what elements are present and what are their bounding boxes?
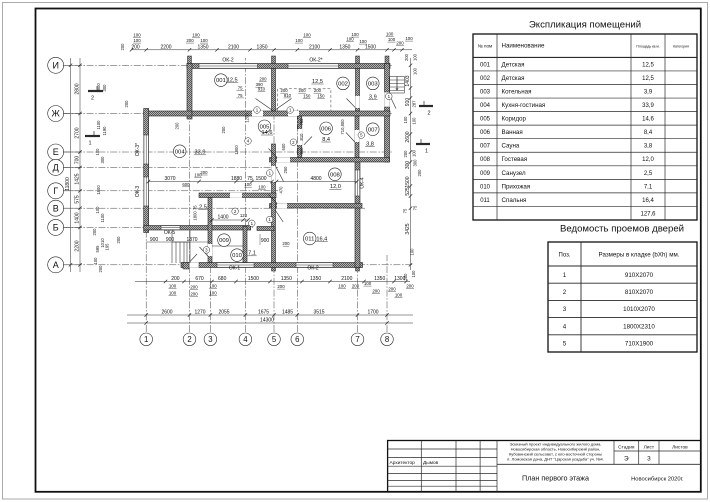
- svg-text:710Х1900: 710Х1900: [625, 341, 654, 348]
- svg-text:200: 200: [406, 284, 414, 289]
- svg-text:1800: 1800: [234, 145, 239, 155]
- svg-text:1: 1: [563, 272, 567, 279]
- svg-text:200: 200: [417, 169, 422, 177]
- svg-text:3: 3: [563, 306, 567, 313]
- svg-text:200: 200: [171, 276, 180, 282]
- svg-text:Прихожая: Прихожая: [502, 183, 531, 190]
- svg-text:005: 005: [480, 117, 491, 123]
- svg-text:Категория: Категория: [673, 44, 689, 48]
- svg-text:525: 525: [405, 187, 411, 196]
- svg-text:3425: 3425: [405, 223, 411, 234]
- svg-text:1190: 1190: [102, 126, 107, 136]
- svg-text:100: 100: [386, 32, 394, 37]
- svg-text:680: 680: [218, 276, 227, 282]
- svg-text:1485: 1485: [282, 310, 293, 316]
- svg-text:100: 100: [412, 67, 417, 75]
- svg-text:100: 100: [338, 284, 346, 289]
- svg-text:100: 100: [209, 291, 217, 296]
- svg-text:Санузел: Санузел: [502, 170, 526, 177]
- svg-text:Новосибирск 2020г.: Новосибирск 2020г.: [631, 477, 684, 483]
- svg-text:700: 700: [75, 156, 81, 165]
- svg-text:1100: 1100: [96, 120, 101, 130]
- svg-text:2100: 2100: [309, 44, 320, 50]
- svg-text:1350: 1350: [281, 276, 292, 282]
- svg-text:Спальня: Спальня: [502, 197, 527, 204]
- svg-text:200: 200: [190, 292, 198, 297]
- svg-text:Размеры в кладке (bХh) мм.: Размеры в кладке (bХh) мм.: [599, 252, 680, 259]
- svg-text:250: 250: [283, 166, 288, 174]
- svg-text:2,5: 2,5: [644, 171, 653, 177]
- svg-text:575: 575: [75, 195, 81, 204]
- svg-text:200: 200: [314, 88, 322, 93]
- svg-text:100: 100: [412, 53, 417, 61]
- svg-text:8: 8: [385, 335, 389, 344]
- svg-text:Листов: Листов: [672, 444, 688, 450]
- svg-text:Стадия: Стадия: [618, 444, 635, 450]
- svg-text:4800: 4800: [310, 176, 321, 182]
- svg-text:470: 470: [279, 186, 284, 194]
- svg-text:1: 1: [144, 335, 148, 344]
- svg-text:3: 3: [208, 335, 212, 344]
- svg-text:п. Ломовская дача, ДНТ "Царска: п. Ломовская дача, ДНТ "Царская усадьба"…: [507, 456, 604, 461]
- svg-text:120: 120: [240, 213, 248, 218]
- svg-text:Лист: Лист: [644, 444, 655, 450]
- svg-text:1500: 1500: [365, 44, 376, 50]
- svg-text:1880: 1880: [231, 176, 242, 182]
- svg-text:75: 75: [238, 93, 243, 98]
- svg-text:011: 011: [305, 237, 314, 243]
- svg-text:Наименование: Наименование: [502, 43, 545, 50]
- svg-text:1700: 1700: [367, 310, 378, 316]
- svg-text:100: 100: [192, 33, 200, 38]
- svg-text:100: 100: [359, 39, 367, 44]
- svg-text:600: 600: [281, 143, 286, 151]
- svg-text:008: 008: [480, 157, 491, 163]
- svg-text:1010Х2070: 1010Х2070: [623, 306, 655, 313]
- svg-text:006: 006: [480, 130, 491, 136]
- svg-text:План первого этажа: План первого этажа: [522, 474, 589, 483]
- svg-text:12,0: 12,0: [642, 157, 654, 163]
- svg-text:1500: 1500: [248, 276, 259, 282]
- svg-text:Кухня-гостиная: Кухня-гостиная: [502, 102, 546, 109]
- svg-text:8,4: 8,4: [644, 130, 653, 136]
- svg-text:5: 5: [272, 335, 277, 344]
- svg-text:Сауна: Сауна: [502, 143, 520, 150]
- svg-text:5: 5: [563, 341, 567, 348]
- svg-text:Гостевая: Гостевая: [502, 156, 528, 163]
- svg-text:1: 1: [88, 141, 91, 147]
- svg-text:003: 003: [368, 82, 379, 88]
- svg-text:595: 595: [95, 245, 100, 253]
- svg-text:ОК-3*: ОК-3*: [135, 143, 141, 156]
- svg-text:670: 670: [195, 276, 204, 282]
- svg-text:910: 910: [258, 87, 266, 92]
- svg-text:1350: 1350: [339, 44, 350, 50]
- svg-text:1675: 1675: [258, 310, 269, 316]
- svg-text:Детская: Детская: [502, 75, 525, 82]
- svg-text:100: 100: [93, 257, 98, 265]
- svg-text:100: 100: [403, 116, 408, 124]
- svg-text:2100: 2100: [341, 276, 352, 282]
- svg-text:7: 7: [355, 335, 359, 344]
- svg-text:3070: 3070: [164, 176, 175, 182]
- svg-text:300: 300: [413, 159, 418, 167]
- svg-text:009: 009: [480, 171, 491, 177]
- svg-text:100: 100: [133, 38, 141, 43]
- svg-text:2800: 2800: [75, 83, 81, 94]
- svg-text:14300: 14300: [260, 318, 274, 324]
- svg-text:007: 007: [368, 127, 378, 133]
- svg-text:200: 200: [98, 265, 103, 273]
- svg-text:100: 100: [295, 38, 303, 43]
- svg-text:200: 200: [200, 170, 208, 175]
- svg-text:Г: Г: [53, 186, 58, 196]
- svg-text:14,6: 14,6: [642, 117, 654, 123]
- svg-text:150: 150: [303, 94, 311, 99]
- svg-text:2055: 2055: [218, 310, 229, 316]
- svg-text:Котельная: Котельная: [502, 88, 532, 95]
- svg-text:100: 100: [244, 182, 252, 187]
- svg-text:1400: 1400: [217, 214, 228, 220]
- svg-text:2200: 2200: [160, 44, 171, 50]
- svg-text:А: А: [53, 260, 59, 270]
- svg-text:1800: 1800: [96, 185, 101, 195]
- svg-text:2: 2: [187, 335, 191, 344]
- svg-text:Поз.: Поз.: [559, 253, 571, 259]
- svg-text:200: 200: [116, 236, 121, 244]
- svg-text:И: И: [52, 61, 58, 71]
- svg-text:200: 200: [186, 38, 194, 43]
- svg-text:3515: 3515: [313, 310, 324, 316]
- svg-text:004: 004: [175, 149, 186, 155]
- svg-text:1100: 1100: [100, 213, 105, 223]
- svg-text:010: 010: [480, 184, 491, 190]
- svg-text:100: 100: [412, 149, 417, 157]
- svg-text:Экспликация помещений: Экспликация помещений: [529, 20, 641, 31]
- svg-text:2600: 2600: [405, 131, 411, 142]
- svg-text:200: 200: [388, 287, 396, 292]
- svg-text:2200: 2200: [75, 240, 81, 251]
- svg-text:ОК-1: ОК-1: [229, 266, 240, 272]
- svg-text:1500: 1500: [255, 176, 266, 182]
- svg-text:100: 100: [200, 38, 208, 43]
- svg-text:2100: 2100: [228, 44, 239, 50]
- svg-text:100: 100: [258, 185, 266, 190]
- svg-text:16,4: 16,4: [642, 198, 654, 204]
- svg-text:009: 009: [219, 238, 229, 244]
- svg-text:100: 100: [364, 281, 372, 286]
- svg-text:100: 100: [411, 270, 416, 278]
- svg-text:011: 011: [480, 198, 490, 204]
- svg-text:900: 900: [261, 238, 270, 244]
- svg-text:1425: 1425: [75, 173, 81, 184]
- svg-text:Э: Э: [624, 455, 629, 462]
- svg-text:200: 200: [403, 273, 408, 281]
- svg-text:200: 200: [259, 76, 267, 81]
- svg-text:1350: 1350: [256, 44, 267, 50]
- svg-text:75: 75: [238, 85, 243, 90]
- svg-text:200: 200: [282, 241, 290, 246]
- svg-text:200: 200: [221, 126, 226, 134]
- svg-text:007: 007: [480, 144, 491, 150]
- svg-text:2600: 2600: [161, 310, 172, 316]
- svg-text:200: 200: [190, 285, 198, 290]
- svg-text:Ведомость проемов дверей: Ведомость проемов дверей: [560, 224, 684, 235]
- svg-text:150: 150: [317, 94, 325, 99]
- svg-text:ОК-4: ОК-4: [359, 177, 365, 188]
- svg-text:127,6: 127,6: [640, 211, 656, 217]
- svg-text:100: 100: [95, 148, 100, 156]
- svg-text:2: 2: [427, 111, 430, 117]
- svg-text:75: 75: [403, 208, 408, 213]
- svg-text:810: 810: [299, 133, 304, 141]
- svg-text:1200: 1200: [245, 113, 250, 123]
- svg-text:195: 195: [105, 243, 110, 251]
- svg-text:100: 100: [169, 291, 177, 296]
- svg-text:33,9: 33,9: [642, 103, 654, 109]
- svg-text:1403: 1403: [405, 75, 411, 86]
- svg-text:200: 200: [404, 53, 409, 61]
- svg-text:3,9: 3,9: [644, 89, 653, 95]
- svg-text:100: 100: [351, 32, 359, 37]
- svg-text:Детская: Детская: [502, 61, 525, 68]
- svg-text:1350: 1350: [310, 276, 321, 282]
- svg-text:300: 300: [100, 156, 105, 164]
- svg-text:300: 300: [405, 161, 411, 170]
- svg-text:001: 001: [216, 78, 226, 84]
- svg-text:910Х2070: 910Х2070: [625, 272, 654, 279]
- svg-text:Дымов: Дымов: [423, 460, 439, 466]
- svg-text:1500: 1500: [405, 176, 411, 187]
- svg-text:3,8: 3,8: [644, 144, 653, 150]
- svg-text:100: 100: [410, 248, 415, 256]
- svg-text:Ванная: Ванная: [502, 129, 523, 136]
- svg-text:1350: 1350: [374, 276, 385, 282]
- svg-text:1270: 1270: [194, 310, 205, 316]
- svg-text:006: 006: [321, 126, 332, 132]
- svg-text:2: 2: [91, 96, 94, 102]
- svg-text:200: 200: [124, 100, 129, 108]
- svg-text:№ пом: № пом: [478, 44, 492, 49]
- svg-text:003: 003: [480, 89, 491, 95]
- svg-text:200: 200: [352, 284, 360, 289]
- svg-text:100: 100: [133, 33, 141, 38]
- svg-text:710,800: 710,800: [340, 119, 345, 135]
- svg-text:12,5: 12,5: [642, 76, 654, 82]
- svg-text:В: В: [53, 203, 59, 213]
- svg-text:100: 100: [95, 206, 100, 214]
- svg-text:Площадь кв.м.: Площадь кв.м.: [636, 44, 659, 48]
- svg-text:002: 002: [338, 82, 348, 88]
- svg-text:200: 200: [131, 44, 140, 50]
- svg-text:1400: 1400: [75, 212, 81, 223]
- svg-text:Архитектор: Архитектор: [390, 460, 416, 466]
- svg-text:002: 002: [480, 76, 491, 82]
- svg-text:200: 200: [299, 88, 307, 93]
- svg-text:200: 200: [277, 284, 285, 289]
- svg-text:200: 200: [120, 43, 125, 51]
- svg-text:910: 910: [284, 93, 292, 98]
- svg-text:100: 100: [412, 117, 417, 125]
- svg-text:010: 010: [232, 253, 243, 259]
- svg-text:600: 600: [182, 182, 190, 187]
- svg-text:750: 750: [299, 118, 304, 126]
- svg-text:11800: 11800: [65, 177, 71, 191]
- svg-text:810Х2070: 810Х2070: [625, 289, 654, 296]
- svg-text:ОК-2*: ОК-2*: [309, 57, 322, 63]
- svg-text:200: 200: [403, 150, 408, 158]
- svg-text:Ж: Ж: [52, 109, 61, 119]
- svg-text:100: 100: [395, 293, 403, 298]
- svg-text:ОК-2: ОК-2: [307, 266, 318, 272]
- svg-text:100: 100: [388, 37, 396, 42]
- svg-text:1800 75: 1800 75: [193, 205, 198, 221]
- svg-text:200: 200: [396, 41, 404, 46]
- svg-text:287: 287: [412, 100, 417, 108]
- svg-text:200: 200: [175, 122, 180, 130]
- svg-text:75: 75: [247, 176, 253, 182]
- svg-text:2: 2: [563, 289, 567, 296]
- svg-text:200: 200: [372, 289, 380, 294]
- svg-text:ОК-2: ОК-2: [222, 57, 233, 63]
- svg-text:100: 100: [169, 284, 177, 289]
- svg-text:Д: Д: [53, 163, 59, 173]
- svg-text:1350: 1350: [197, 44, 208, 50]
- svg-text:1: 1: [425, 149, 428, 155]
- svg-text:Коридор: Коридор: [502, 116, 527, 123]
- svg-text:100: 100: [209, 284, 217, 289]
- svg-text:001: 001: [480, 62, 491, 68]
- svg-text:910: 910: [405, 98, 411, 107]
- svg-text:6: 6: [295, 335, 299, 344]
- svg-text:900: 900: [299, 147, 304, 155]
- svg-text:7,1: 7,1: [644, 184, 653, 190]
- svg-text:100: 100: [303, 33, 311, 38]
- svg-text:3: 3: [647, 455, 651, 462]
- svg-text:Б: Б: [53, 223, 59, 233]
- svg-text:12,5: 12,5: [642, 62, 654, 68]
- svg-text:4: 4: [563, 323, 567, 330]
- svg-text:004: 004: [480, 103, 491, 109]
- svg-text:200: 200: [92, 228, 97, 236]
- svg-text:2700: 2700: [75, 127, 81, 138]
- svg-text:008: 008: [330, 172, 341, 178]
- svg-text:100: 100: [405, 36, 413, 41]
- svg-text:ОК-5: ОК-5: [164, 230, 175, 236]
- svg-text:ОК-3: ОК-3: [135, 186, 141, 197]
- svg-text:Е: Е: [53, 147, 59, 157]
- svg-text:4: 4: [243, 335, 248, 344]
- svg-text:75: 75: [413, 205, 418, 210]
- svg-text:1800Х2310: 1800Х2310: [623, 323, 655, 330]
